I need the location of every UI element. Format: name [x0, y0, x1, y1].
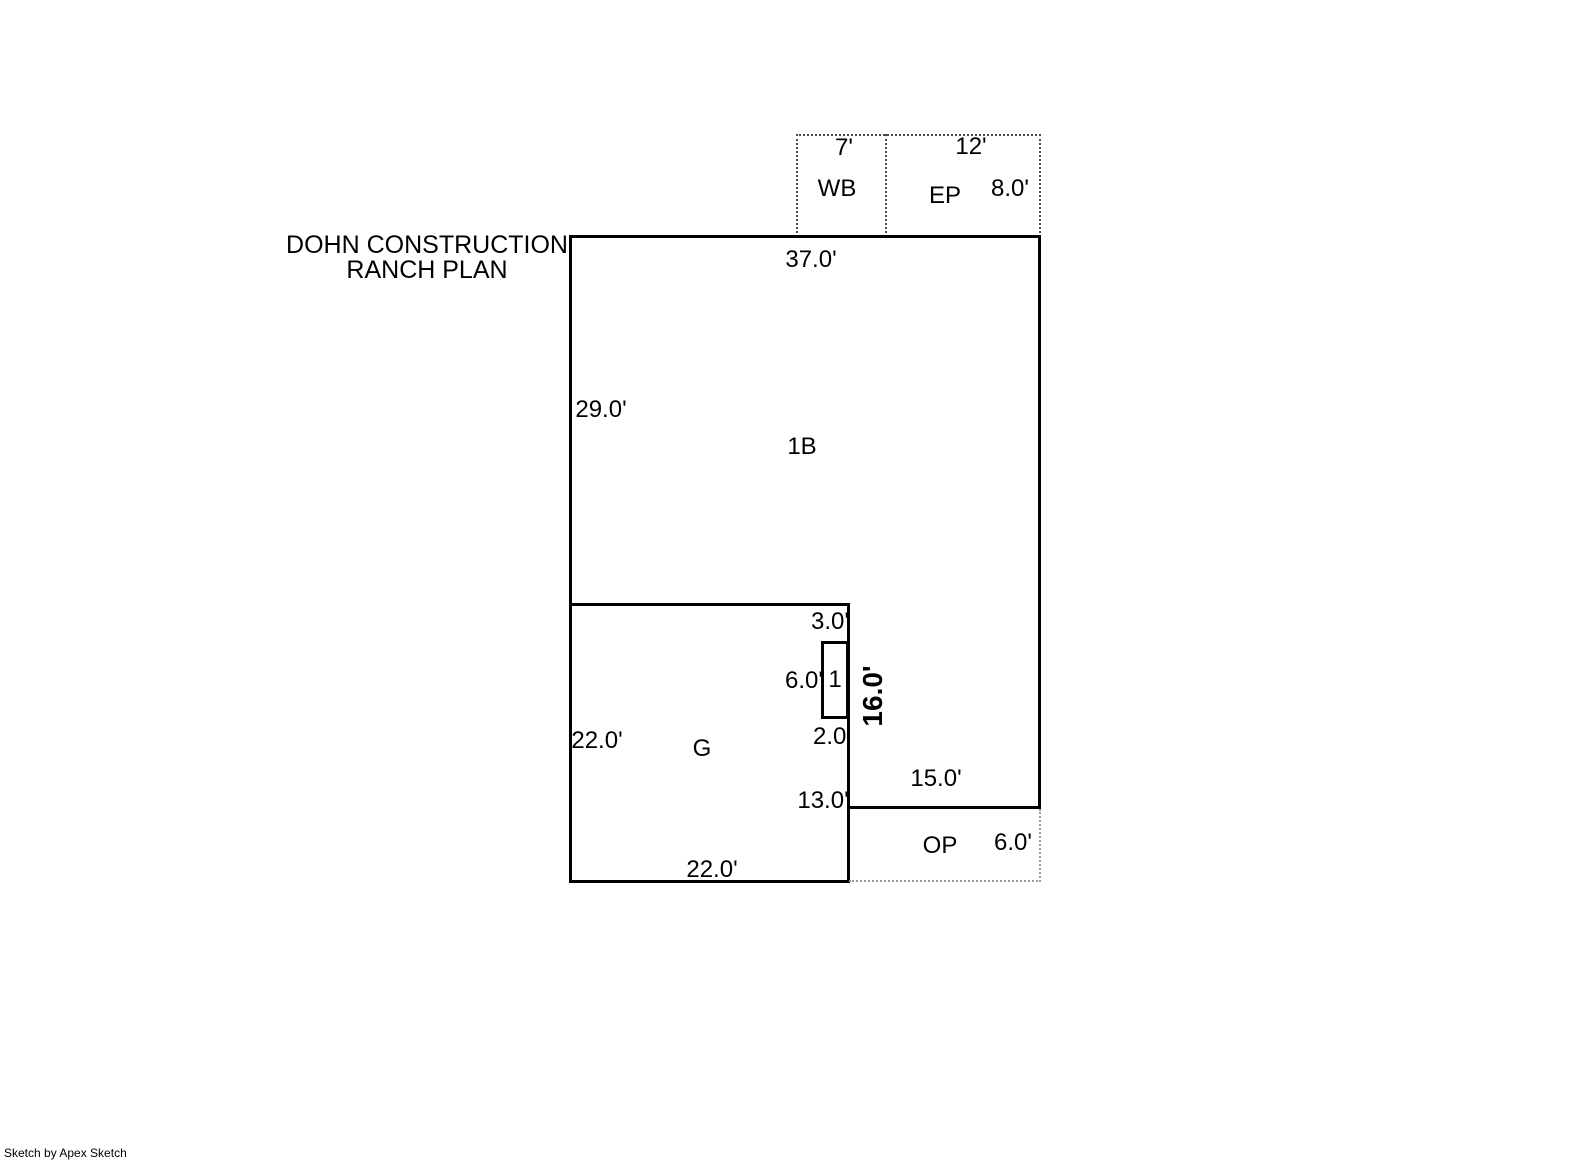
- dim-op-height: 6.0': [994, 831, 1032, 855]
- dim-wb-width: 7': [835, 136, 853, 160]
- dim-main-height: 29.0': [575, 398, 626, 422]
- dim-garage-bottom: 22.0': [686, 858, 737, 882]
- dim-ep-depth: 8.0': [991, 177, 1029, 201]
- dim-inset-top: 3.0': [811, 610, 849, 634]
- plan-title-line2: RANCH PLAN: [286, 258, 568, 283]
- dim-inset-bottom: 2.0': [813, 725, 851, 749]
- dim-garage-left: 22.0': [571, 729, 622, 753]
- wb-ep-top-edge: [796, 134, 1041, 136]
- area-label-op: OP: [923, 834, 958, 858]
- dim-op-width: 15.0': [910, 767, 961, 791]
- plan-title: DOHN CONSTRUCTION RANCH PLAN: [286, 233, 568, 283]
- main-top-wall: [569, 235, 1041, 238]
- dim-inset-left: 6.0': [785, 669, 823, 693]
- main-right-wall: [1038, 235, 1041, 809]
- wb-ep-divider-edge: [885, 134, 887, 237]
- dim-inset-wall: 16.0': [859, 665, 887, 726]
- wb-left-edge: [796, 134, 798, 237]
- sketch-credit: Sketch by Apex Sketch: [4, 1146, 127, 1160]
- op-bottom-edge: [849, 880, 1041, 882]
- area-label-inset: 1: [828, 668, 841, 692]
- area-label-wb: WB: [818, 177, 857, 201]
- plan-title-line1: DOHN CONSTRUCTION: [286, 233, 568, 258]
- op-top-wall: [847, 806, 1041, 809]
- op-right-edge: [1039, 809, 1041, 882]
- area-label-main: 1B: [787, 435, 816, 459]
- garage-top-wall: [569, 603, 850, 606]
- area-label-ep: EP: [929, 184, 961, 208]
- dim-garage-right: 13.0': [797, 789, 848, 813]
- ep-right-edge: [1039, 134, 1041, 237]
- floor-plan-canvas: DOHN CONSTRUCTION RANCH PLAN 7' WB 12' E…: [0, 0, 1585, 1163]
- dim-main-width: 37.0': [785, 248, 836, 272]
- main-left-wall: [569, 235, 572, 883]
- area-label-garage: G: [693, 737, 712, 761]
- dim-ep-width: 12': [955, 135, 986, 159]
